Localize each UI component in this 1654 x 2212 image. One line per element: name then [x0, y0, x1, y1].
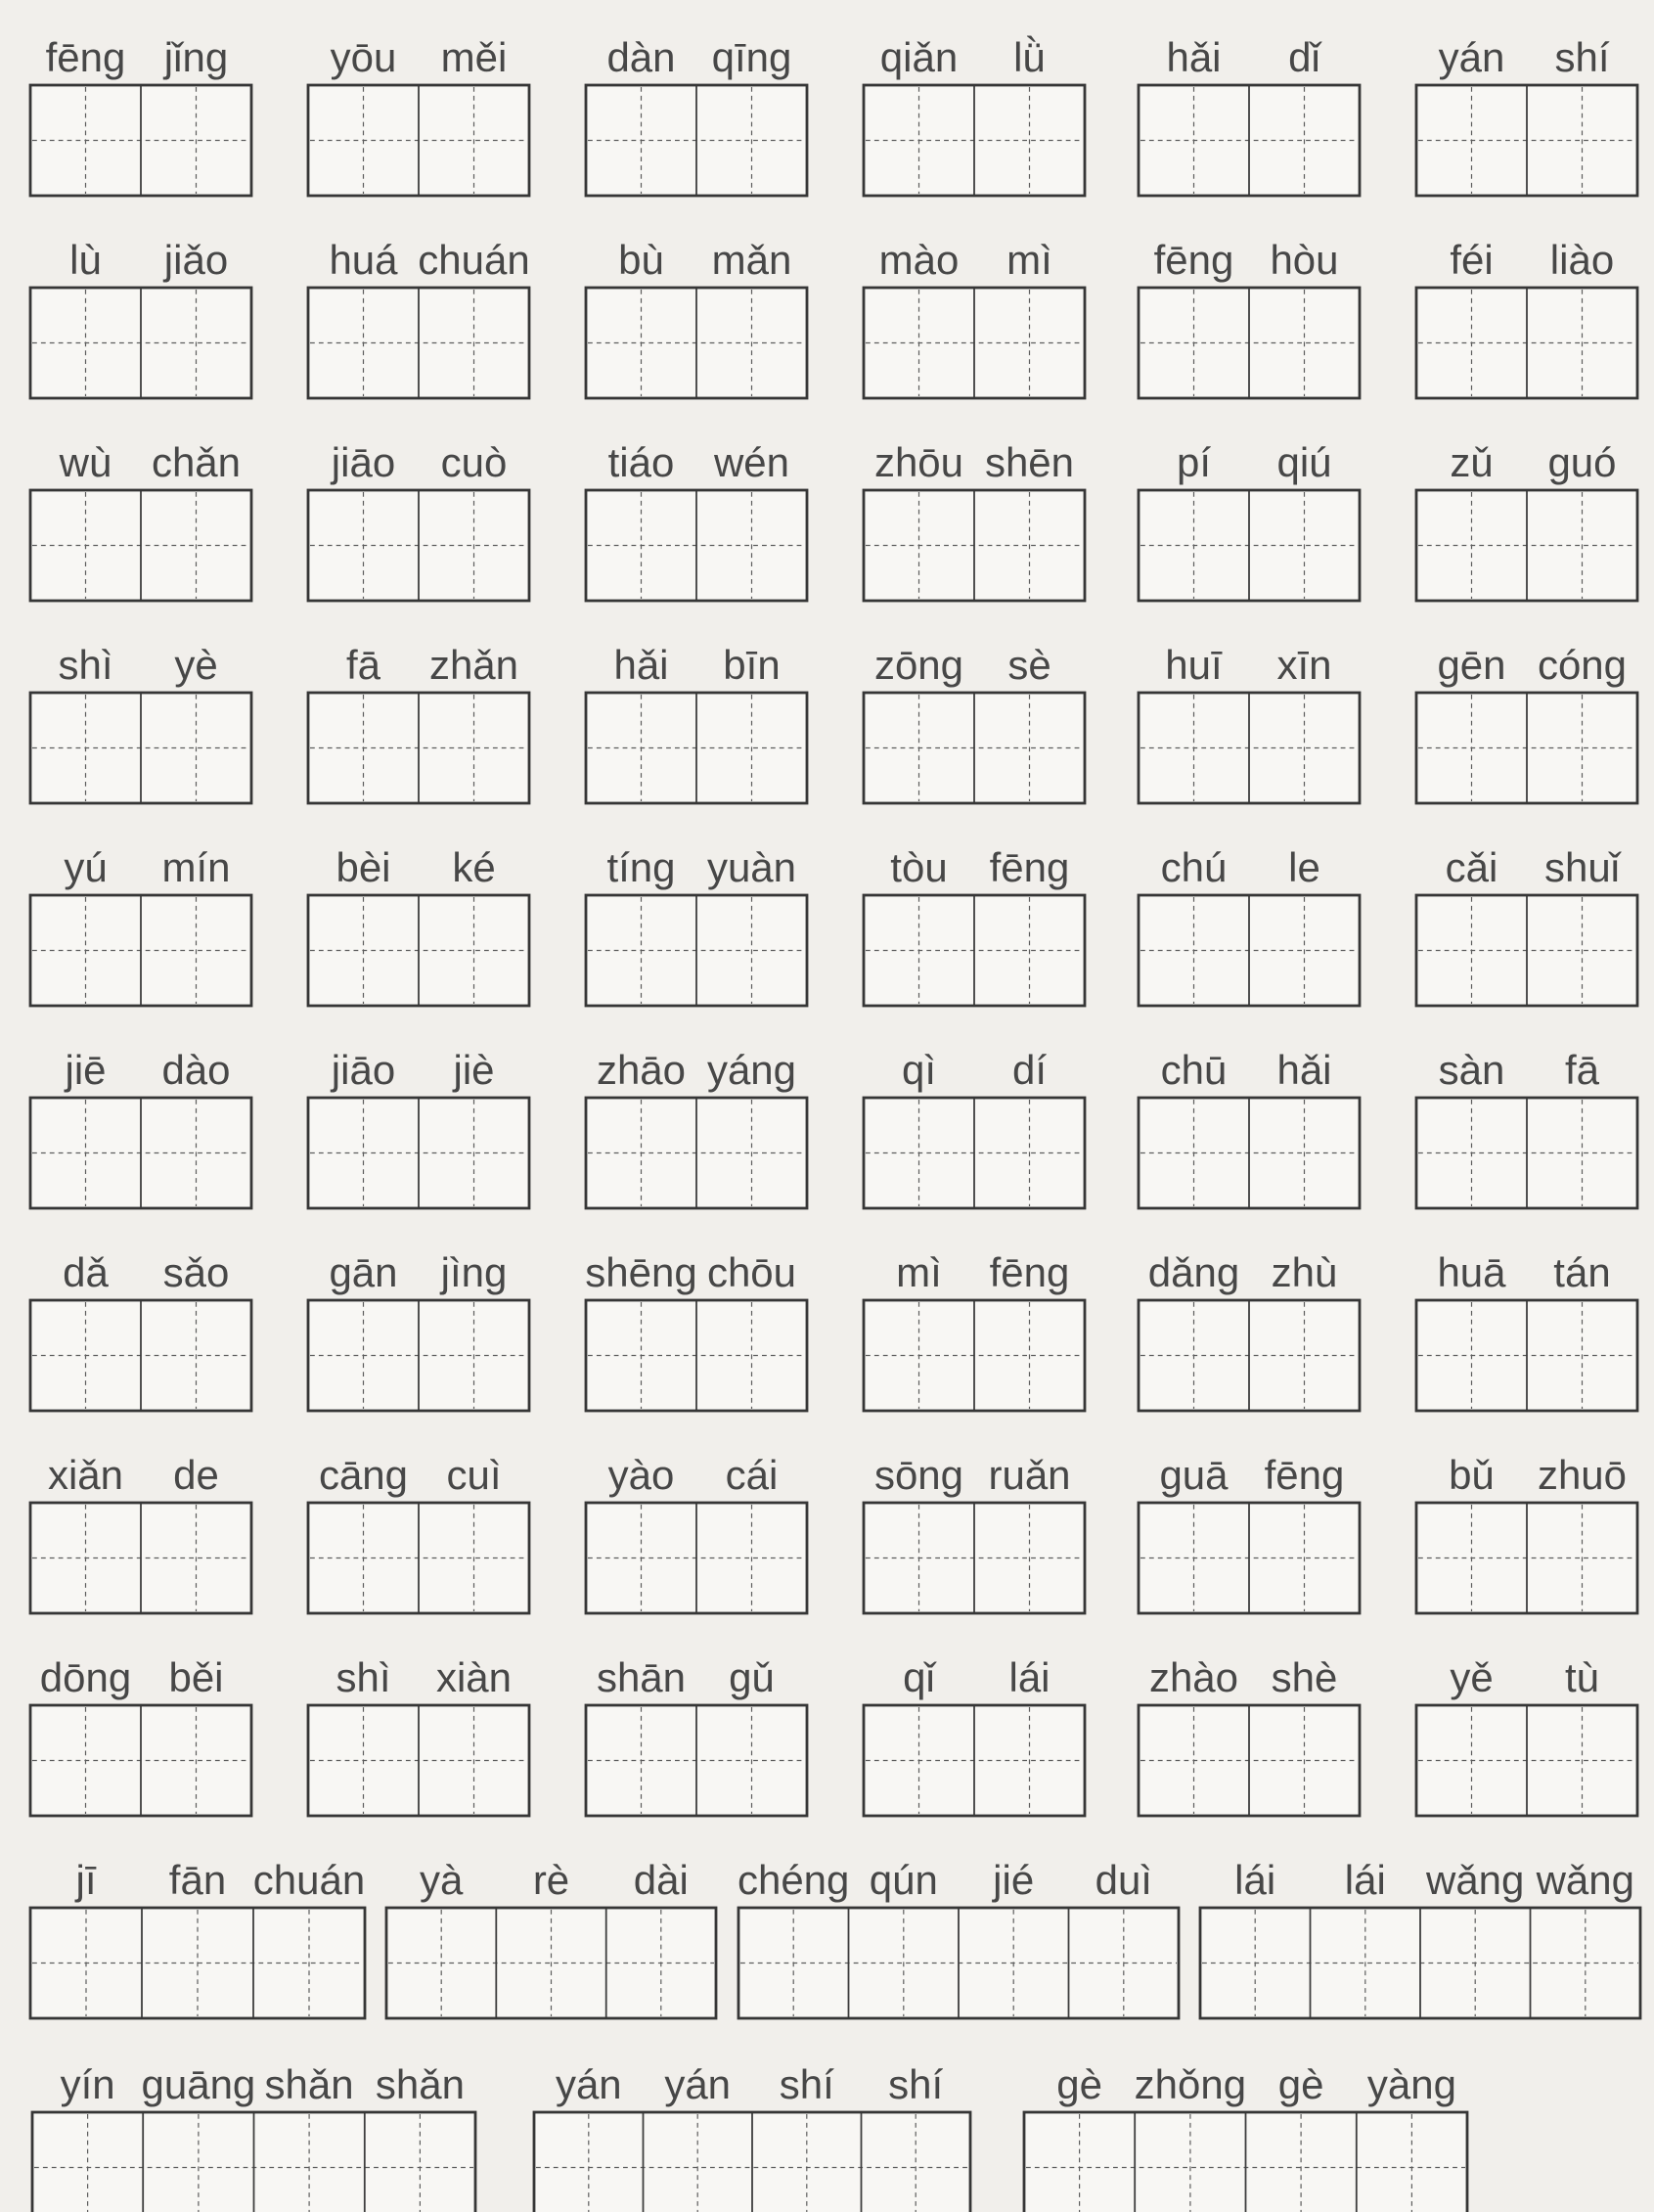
svg-text:chú: chú: [1161, 844, 1228, 890]
svg-text:shēng: shēng: [585, 1249, 696, 1295]
svg-text:hǎi: hǎi: [1276, 1047, 1331, 1093]
svg-text:shǎn: shǎn: [265, 2061, 354, 2107]
svg-text:yán: yán: [556, 2061, 622, 2107]
svg-text:jiāo: jiāo: [330, 1047, 395, 1093]
svg-text:chuán: chuán: [418, 237, 529, 283]
svg-text:wén: wén: [713, 439, 789, 485]
svg-text:fā: fā: [346, 642, 381, 688]
svg-text:lǜ: lǜ: [1013, 34, 1046, 80]
svg-text:cuò: cuò: [441, 439, 508, 485]
svg-text:dǐ: dǐ: [1288, 34, 1322, 80]
svg-text:bǔ: bǔ: [1449, 1452, 1495, 1498]
svg-text:měi: měi: [441, 34, 508, 80]
svg-text:wǎng: wǎng: [1425, 1857, 1524, 1903]
svg-text:zhào: zhào: [1149, 1654, 1238, 1700]
svg-text:lù: lù: [69, 237, 102, 283]
svg-text:fēng: fēng: [990, 844, 1070, 890]
svg-text:fēng: fēng: [1265, 1452, 1345, 1498]
svg-text:wù: wù: [59, 439, 112, 485]
svg-text:sǎo: sǎo: [163, 1249, 230, 1295]
svg-text:hòu: hòu: [1270, 237, 1338, 283]
svg-text:zǔ: zǔ: [1450, 439, 1493, 485]
svg-text:yōu: yōu: [331, 34, 397, 80]
svg-text:jié: jié: [991, 1857, 1034, 1903]
svg-text:yuàn: yuàn: [707, 844, 796, 890]
svg-text:dōng: dōng: [40, 1654, 131, 1700]
svg-text:tán: tán: [1553, 1249, 1610, 1295]
svg-text:lái: lái: [1008, 1654, 1050, 1700]
svg-text:yě: yě: [1450, 1654, 1493, 1700]
svg-text:běi: běi: [168, 1654, 223, 1700]
svg-text:jī: jī: [74, 1857, 97, 1903]
svg-text:yín: yín: [61, 2061, 115, 2107]
svg-text:gēn: gēn: [1437, 642, 1505, 688]
svg-text:huī: huī: [1165, 642, 1223, 688]
svg-text:mín: mín: [161, 844, 230, 890]
svg-text:dàn: dàn: [606, 34, 675, 80]
svg-text:bèi: bèi: [335, 844, 390, 890]
svg-text:jiǎo: jiǎo: [162, 237, 228, 283]
svg-text:xiàn: xiàn: [436, 1654, 512, 1700]
svg-text:qīng: qīng: [712, 34, 792, 80]
svg-text:cuì: cuì: [446, 1452, 501, 1498]
svg-text:tòu: tòu: [890, 844, 947, 890]
svg-text:yán: yán: [1439, 34, 1505, 80]
svg-text:jiè: jiè: [451, 1047, 494, 1093]
svg-text:zhǎn: zhǎn: [429, 642, 518, 688]
svg-text:fēng: fēng: [46, 34, 126, 80]
svg-text:jìng: jìng: [439, 1249, 508, 1295]
svg-text:gè: gè: [1056, 2061, 1102, 2107]
svg-text:zhāo: zhāo: [597, 1047, 686, 1093]
svg-text:liào: liào: [1550, 237, 1614, 283]
svg-text:cóng: cóng: [1538, 642, 1627, 688]
svg-text:qiú: qiú: [1276, 439, 1331, 485]
svg-text:féi: féi: [1450, 237, 1493, 283]
svg-text:yào: yào: [608, 1452, 675, 1498]
svg-text:pí: pí: [1177, 439, 1211, 485]
svg-text:lái: lái: [1345, 1857, 1386, 1903]
svg-text:huá: huá: [329, 237, 398, 283]
svg-text:guāng: guāng: [142, 2061, 256, 2107]
svg-text:qiǎn: qiǎn: [880, 34, 958, 80]
svg-text:shēn: shēn: [985, 439, 1074, 485]
svg-text:fēng: fēng: [1154, 237, 1234, 283]
svg-text:shè: shè: [1272, 1654, 1338, 1700]
svg-text:yàng: yàng: [1367, 2061, 1456, 2107]
svg-text:zhōu: zhōu: [874, 439, 963, 485]
svg-text:gān: gān: [329, 1249, 397, 1295]
svg-text:shǎn: shǎn: [376, 2061, 465, 2107]
svg-text:qǐ: qǐ: [903, 1654, 937, 1700]
svg-text:guā: guā: [1159, 1452, 1229, 1498]
svg-text:jiē: jiē: [63, 1047, 106, 1093]
svg-text:dí: dí: [1012, 1047, 1047, 1093]
svg-text:duì: duì: [1095, 1857, 1152, 1903]
svg-text:yà: yà: [420, 1857, 464, 1903]
svg-text:huā: huā: [1437, 1249, 1506, 1295]
svg-text:gè: gè: [1278, 2061, 1324, 2107]
svg-text:bīn: bīn: [723, 642, 780, 688]
svg-text:xiǎn: xiǎn: [48, 1452, 123, 1498]
svg-text:jiāo: jiāo: [330, 439, 395, 485]
svg-text:sè: sè: [1007, 642, 1051, 688]
svg-text:zhǒng: zhǒng: [1135, 2061, 1246, 2107]
svg-text:shān: shān: [597, 1654, 686, 1700]
svg-text:xīn: xīn: [1276, 642, 1331, 688]
svg-text:jǐng: jǐng: [162, 34, 228, 80]
svg-text:rè: rè: [533, 1857, 569, 1903]
svg-text:shí: shí: [780, 2061, 834, 2107]
svg-text:chéng: chéng: [738, 1857, 849, 1903]
svg-text:gǔ: gǔ: [729, 1654, 775, 1700]
svg-text:hǎi: hǎi: [613, 642, 668, 688]
svg-text:bù: bù: [618, 237, 664, 283]
svg-text:wǎng: wǎng: [1536, 1857, 1634, 1903]
svg-text:tíng: tíng: [606, 844, 675, 890]
svg-text:fān: fān: [169, 1857, 226, 1903]
svg-text:fēng: fēng: [990, 1249, 1070, 1295]
svg-text:chōu: chōu: [707, 1249, 796, 1295]
svg-text:shuǐ: shuǐ: [1544, 844, 1623, 890]
svg-text:ruǎn: ruǎn: [988, 1452, 1070, 1498]
svg-text:tiáo: tiáo: [608, 439, 675, 485]
svg-text:cāng: cāng: [319, 1452, 408, 1498]
svg-text:dài: dài: [634, 1857, 689, 1903]
svg-text:de: de: [173, 1452, 219, 1498]
svg-text:chū: chū: [1161, 1047, 1228, 1093]
svg-text:zhù: zhù: [1272, 1249, 1338, 1295]
svg-text:yè: yè: [174, 642, 217, 688]
svg-text:shí: shí: [888, 2061, 943, 2107]
svg-text:shí: shí: [1554, 34, 1609, 80]
svg-text:mì: mì: [896, 1249, 942, 1295]
svg-text:cái: cái: [726, 1452, 779, 1498]
svg-text:yú: yú: [64, 844, 107, 890]
svg-text:hǎi: hǎi: [1166, 34, 1221, 80]
svg-text:qì: qì: [902, 1047, 936, 1093]
svg-text:chuán: chuán: [253, 1857, 365, 1903]
svg-text:lái: lái: [1234, 1857, 1275, 1903]
svg-text:mì: mì: [1006, 237, 1052, 283]
svg-text:zōng: zōng: [874, 642, 963, 688]
svg-text:tù: tù: [1565, 1654, 1599, 1700]
svg-text:yán: yán: [664, 2061, 731, 2107]
svg-text:dào: dào: [161, 1047, 230, 1093]
svg-text:shì: shì: [58, 642, 112, 688]
svg-text:zhuō: zhuō: [1538, 1452, 1627, 1498]
svg-text:mǎn: mǎn: [712, 237, 792, 283]
svg-text:dǎ: dǎ: [63, 1249, 109, 1295]
svg-text:dǎng: dǎng: [1148, 1249, 1239, 1295]
svg-text:guó: guó: [1547, 439, 1616, 485]
svg-text:sàn: sàn: [1439, 1047, 1505, 1093]
svg-text:yáng: yáng: [707, 1047, 796, 1093]
svg-text:chǎn: chǎn: [152, 439, 241, 485]
svg-text:fā: fā: [1565, 1047, 1600, 1093]
svg-text:ké: ké: [452, 844, 495, 890]
svg-text:sōng: sōng: [874, 1452, 963, 1498]
svg-text:qún: qún: [870, 1857, 938, 1903]
svg-text:mào: mào: [879, 237, 960, 283]
svg-text:cǎi: cǎi: [1446, 844, 1498, 890]
svg-text:le: le: [1288, 844, 1320, 890]
svg-text:shì: shì: [335, 1654, 390, 1700]
